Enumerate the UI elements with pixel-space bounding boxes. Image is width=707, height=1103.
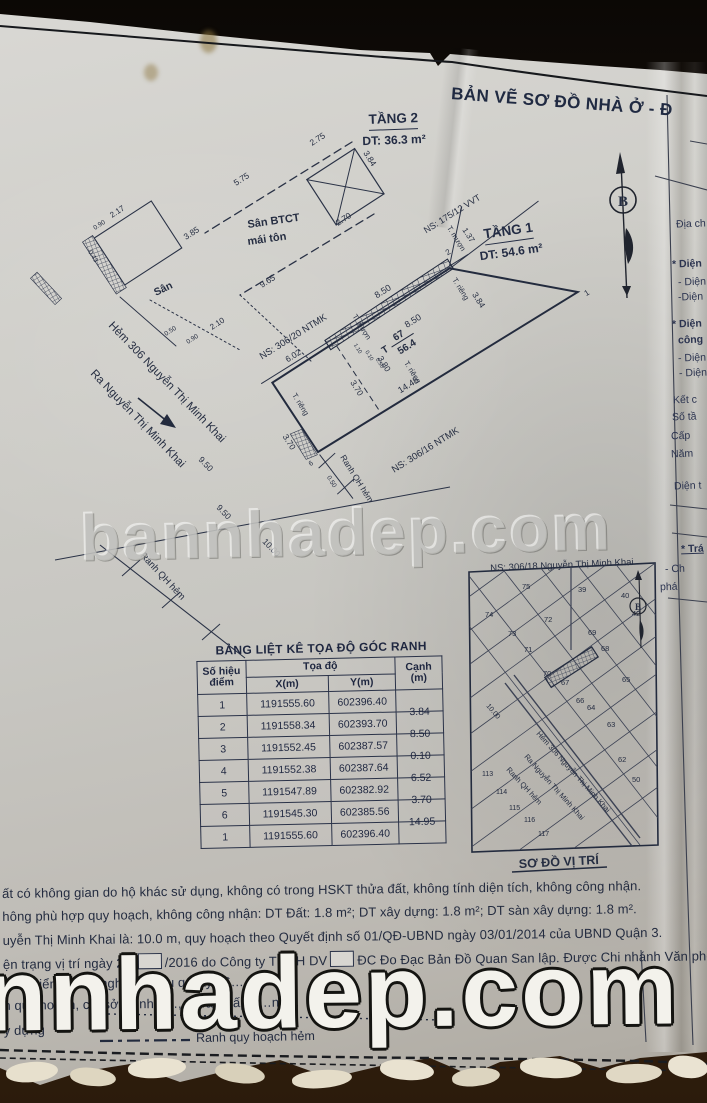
dim-217: 2.17: [108, 203, 126, 219]
map-lot: 68: [601, 644, 609, 653]
side-panel-line: * Diện: [672, 317, 702, 330]
dim-110: 1.10: [352, 343, 363, 355]
dim-384-box: 3.84: [361, 149, 379, 169]
map-lot: 62: [618, 755, 626, 764]
side-panel-line: Cấp: [671, 430, 691, 443]
map-lot: 64: [587, 703, 595, 712]
floor2-plan: 2.75 3.84 2.70 5.75 9.65 3.85 2.17 0.90 …: [30, 130, 384, 362]
side-panel-line: phá: [660, 581, 678, 594]
dim-010: 0.10: [363, 350, 374, 362]
dim-370-in: 3.70: [348, 378, 365, 398]
san-label: Sân: [152, 279, 175, 298]
watermark-mid: bannhadep.com: [79, 488, 613, 575]
map-lot: 63: [607, 720, 615, 729]
lot-no: 67: [391, 328, 407, 343]
floor2-name: TẦNG 2: [368, 110, 418, 131]
side-panel-line: Diện t: [674, 480, 702, 493]
col-point-header: Số hiệuđiểm: [197, 660, 246, 694]
map-lot: 115: [509, 805, 520, 812]
map-lot: 75: [522, 582, 530, 591]
side-panel-line: - Ch: [665, 563, 685, 576]
map-lot: 67: [561, 678, 569, 687]
san-btct-label-2: mái tôn: [247, 231, 288, 248]
dim-210: 2.10: [208, 315, 226, 331]
dim-384-right: 3.84: [470, 290, 487, 310]
dim-602: 6.02: [283, 347, 303, 364]
side-panel-line: - Diện: [678, 352, 706, 365]
map-lot: 69: [588, 628, 596, 637]
map-lot: 73: [508, 629, 516, 638]
floor2-area: DT: 36.3 m²: [362, 132, 426, 148]
side-panel-line: * Diện: [672, 257, 702, 270]
side-panel-line: công: [678, 334, 703, 347]
floor2-header: TẦNG 2 DT: 36.3 m²: [361, 108, 426, 151]
map-lot: 66: [576, 696, 584, 705]
dim-050-yard: 0.50: [163, 325, 178, 338]
top-border-line: [0, 26, 707, 96]
north-arrow: B: [610, 152, 636, 298]
dim-850-in: 8.50: [403, 312, 423, 330]
map-lot: 114: [496, 789, 507, 796]
map-lot: 40: [621, 591, 629, 600]
street-annotations: Hẻm 306 Nguyễn Thị Minh Khai Ra Nguyễn T…: [55, 319, 450, 658]
map-lot: 50: [632, 775, 640, 784]
photo-canvas: B 8.50 8.50 6.02 NS: 306/20 NTMK: [0, 0, 707, 1103]
coordinate-table: Số hiệuđiểm Tọa độ Cạnh(m) X(m) Y(m) 111…: [196, 655, 446, 849]
point-1: 1: [582, 288, 591, 298]
dim-575: 5.75: [232, 170, 252, 188]
dim-090-yard: 0.90: [185, 333, 200, 346]
map-lot: 113: [482, 771, 493, 778]
san-btct-label-1: Sân BTCT: [247, 212, 301, 231]
map-lot: 117: [538, 831, 549, 838]
side-panel-line: Năm: [671, 448, 694, 461]
wall-t-rieng-right: T. riêng: [450, 276, 471, 302]
map-dim-1000: 10.00: [484, 703, 501, 721]
dim-270: 2.70: [334, 210, 354, 228]
dim-385: 3.85: [182, 224, 202, 242]
north-label: B: [618, 194, 628, 210]
map-lot: 65: [622, 675, 630, 684]
point-6: 6: [308, 460, 315, 468]
map-lot: 72: [544, 615, 552, 624]
side-panel-line: * Trá: [681, 543, 704, 556]
side-panel-line: Kết c: [673, 394, 697, 407]
map-lot: 74: [485, 610, 493, 619]
col-x-header: X(m): [246, 675, 329, 693]
coordinate-table-block: BẢNG LIỆT KÊ TỌA ĐỘ GÓC RANH Số hiệuđiểm…: [196, 638, 451, 849]
map-lot: 70: [543, 669, 551, 678]
dim-275: 2.75: [308, 130, 328, 148]
col-y-header: Y(m): [328, 674, 396, 692]
side-panel-line: -Diện: [678, 291, 703, 304]
watermark-bottom: nnhadep.com: [0, 930, 681, 1054]
col-edge-header: Cạnh(m): [395, 656, 443, 690]
dim-090: 0.90: [92, 219, 107, 232]
side-panel-line: Số tầ: [672, 411, 697, 424]
neighbor-306-16: NS: 306/16 NTMK: [390, 425, 462, 476]
map-lot: 71: [524, 645, 532, 654]
dim-950-a: 9.50: [197, 454, 216, 473]
map-north-label: B: [635, 602, 641, 612]
floor1-header: TẦNG 1 DT: 54.6 m²: [475, 217, 543, 266]
bottom-border-line-2: [0, 1058, 707, 1071]
side-panel-line: Địa ch: [676, 217, 706, 230]
side-panel-line: - Diện: [679, 367, 707, 380]
side-panel-line: - Diện: [678, 276, 706, 289]
map-lot: 116: [524, 817, 535, 824]
map-lot: 39: [578, 585, 586, 594]
